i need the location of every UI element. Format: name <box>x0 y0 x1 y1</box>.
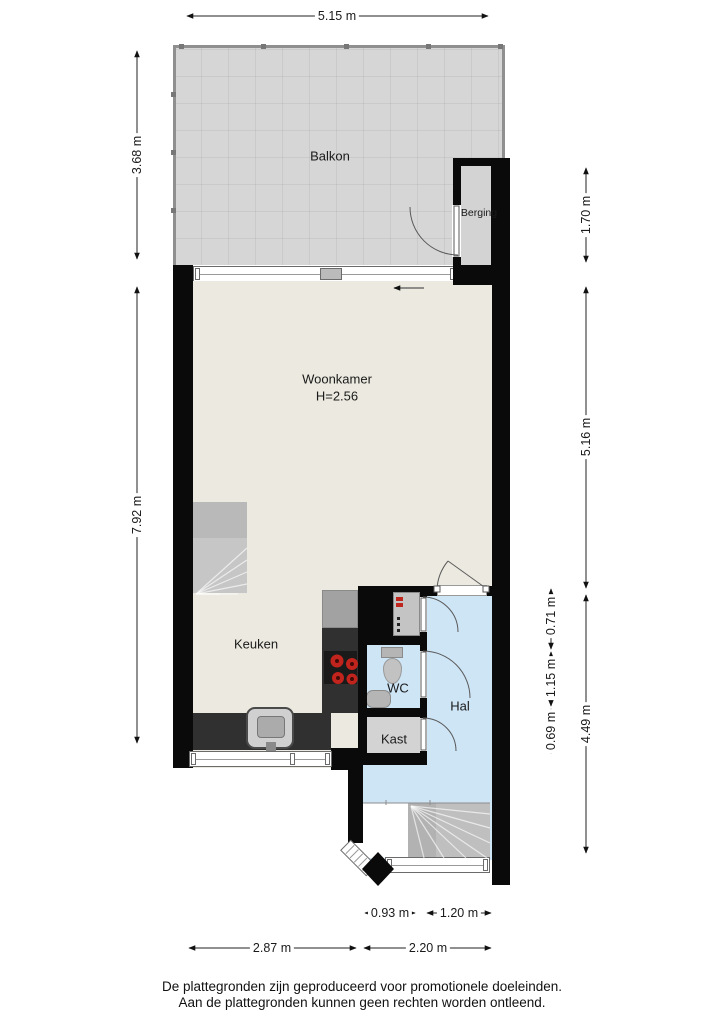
wall-wc-kast <box>358 708 427 717</box>
kitchen-window <box>189 751 332 767</box>
meterkast-appliance <box>393 592 420 636</box>
staircase-lower <box>408 803 490 858</box>
dim-balkon-height: 3.68 m <box>130 133 144 177</box>
balkon-label: Balkon <box>310 149 350 164</box>
dim-top-width: 5.15 m <box>315 9 359 23</box>
kitchen-appliance-top <box>322 590 358 628</box>
dim-hal-width: 2.20 m <box>406 941 450 955</box>
dim-trap-width: 0.93 m <box>368 906 412 920</box>
hal-label: Hal <box>450 699 470 714</box>
entrance-door-opening <box>437 585 487 596</box>
dim-wc-height: 1.15 m <box>544 656 558 700</box>
wall-left <box>173 265 193 768</box>
stair-landing <box>363 803 410 858</box>
dim-window-width: 1.20 m <box>437 906 481 920</box>
dim-meterkast-height: 0.71 m <box>544 594 558 638</box>
balkon-railing-left <box>173 45 176 265</box>
wall-top-right <box>453 265 492 285</box>
keuken-label: Keuken <box>234 637 278 652</box>
staircase-upper <box>193 502 247 593</box>
wall-hal-top-left <box>427 586 437 596</box>
dim-berging-height: 1.70 m <box>579 193 593 237</box>
railing-post <box>498 44 503 49</box>
berging-door-opening <box>452 205 461 257</box>
disclaimer-line-2: Aan de plattegronden kunnen geen rechten… <box>0 995 724 1011</box>
railing-post <box>171 92 176 97</box>
railing-post <box>171 150 176 155</box>
wall-wc-left <box>358 645 367 765</box>
dim-keuken-width: 2.87 m <box>250 941 294 955</box>
balkon-railing-right <box>502 45 505 162</box>
kitchen-sink <box>246 707 294 749</box>
kast-door-opening <box>420 718 427 751</box>
dim-woonkamer-height: 5.16 m <box>579 415 593 459</box>
wall-kast-bottom <box>358 753 427 765</box>
kast-label: Kast <box>381 732 407 747</box>
floorplan: Balkon Berging Woonkamer H=2.56 Keuken W… <box>0 0 724 1024</box>
wc-label: WC <box>387 681 409 696</box>
railing-post <box>261 44 266 49</box>
balkon-railing-top <box>173 45 505 48</box>
railing-post <box>179 44 184 49</box>
hal-window <box>385 857 490 873</box>
sliding-door-window <box>193 266 457 282</box>
woonkamer-label: Woonkamer <box>302 372 372 387</box>
wc-door-opening <box>420 651 427 698</box>
dim-kast-height: 0.69 m <box>544 709 558 753</box>
railing-post <box>344 44 349 49</box>
wall-hal-lower-left <box>348 765 363 843</box>
wall-hal-top-right <box>487 586 492 596</box>
dim-woning-height: 7.92 m <box>130 493 144 537</box>
railing-post <box>426 44 431 49</box>
woonkamer-height-label: H=2.56 <box>316 389 358 404</box>
toilet-tank <box>381 647 403 658</box>
cooktop <box>324 651 357 684</box>
dim-hal-height: 4.49 m <box>579 702 593 746</box>
railing-post <box>171 208 176 213</box>
berging-label: Berging <box>461 207 497 219</box>
meterkast-door-opening <box>420 597 427 632</box>
wall-right <box>492 265 510 885</box>
disclaimer-line-1: De plattegronden zijn geproduceerd voor … <box>0 979 724 995</box>
